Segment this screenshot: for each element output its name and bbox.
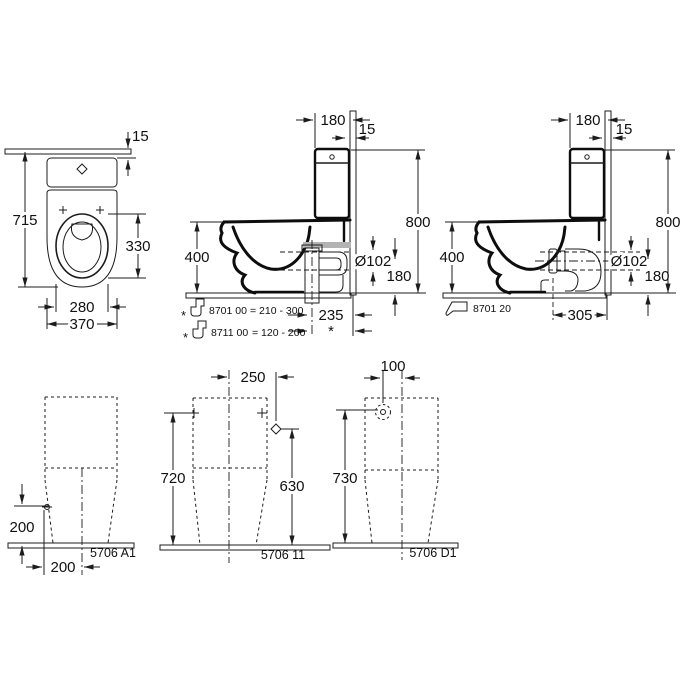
dim-height-720: 720 xyxy=(160,413,189,545)
cistern-front xyxy=(47,158,117,187)
dim-outlet-to-wall: 305 xyxy=(553,295,607,324)
dim-label: 250 xyxy=(240,369,265,386)
floor-section xyxy=(186,293,351,298)
note-code: 8701 20 xyxy=(473,303,511,315)
rear-view-d1: 100 730 5706 D1 xyxy=(332,358,458,560)
dim-label: 370 xyxy=(69,316,94,333)
vario-outlet-icon xyxy=(191,299,204,316)
horizontal-outlet-icon xyxy=(446,302,467,315)
dim-label: 180 xyxy=(644,268,669,285)
dim-cistern-depth: 180 xyxy=(551,112,625,148)
dim-supply-offset: 100 xyxy=(364,358,420,403)
variable-dim-marker: * xyxy=(328,323,334,340)
dim-label: 305 xyxy=(567,307,592,324)
flush-button-icon xyxy=(77,164,87,174)
rear-view-a1: 200 200 5706 A1 xyxy=(8,397,136,576)
spec-sheet: 15 715 330 280 370 xyxy=(0,0,700,700)
wall-section xyxy=(5,149,131,154)
dim-label: Ø102 xyxy=(611,253,648,270)
rear-view-center: 250 720 630 5706 11 xyxy=(160,369,330,563)
dim-label: 720 xyxy=(160,470,185,487)
dim-outlet-height: 180 xyxy=(386,238,411,316)
dim-label: 180 xyxy=(575,112,600,129)
dim-supply-height: 200 xyxy=(9,484,48,564)
bowl-front xyxy=(47,190,117,287)
note-asterisk: * xyxy=(183,330,188,345)
dim-seat-opening: 330 xyxy=(108,214,151,278)
dim-label: 800 xyxy=(655,214,680,231)
dim-label: 630 xyxy=(279,478,304,495)
supply-diamond-icon xyxy=(271,424,281,434)
dim-label: 180 xyxy=(320,112,345,129)
dim-label: 730 xyxy=(332,470,357,487)
model-number: 5706 11 xyxy=(261,548,305,562)
model-number: 5706 D1 xyxy=(409,546,456,560)
note-range: = 210 - 300 xyxy=(250,305,304,317)
note-code: 8711 00 xyxy=(211,327,248,339)
technical-drawing: 15 715 330 280 370 xyxy=(0,0,700,700)
dim-supply-height: 730 xyxy=(332,410,378,543)
outline-dashed xyxy=(365,370,438,560)
note-range: = 120 - 200 xyxy=(252,327,306,339)
dim-label: 235 xyxy=(318,307,343,324)
dim-label: 400 xyxy=(184,249,209,266)
floor-section xyxy=(443,293,606,298)
cistern-side xyxy=(315,149,349,218)
dim-bowl-height: 400 xyxy=(184,222,222,293)
hinge-mark-left xyxy=(59,206,67,214)
side-view-vertical-outlet: 180 15 800 400 Ø102 180 xyxy=(181,111,431,345)
dim-label: 200 xyxy=(50,559,75,576)
dim-supply-height: 630 xyxy=(279,429,304,545)
outlet-note-2: * 8711 00 = 120 - 200 xyxy=(183,321,306,345)
front-view: 15 715 330 280 370 xyxy=(5,128,151,333)
dim-label: 400 xyxy=(439,249,464,266)
note-asterisk: * xyxy=(181,308,186,323)
dim-supply-offset: 250 xyxy=(211,369,294,421)
cistern-side xyxy=(570,149,604,218)
dim-bowl-height: 400 xyxy=(439,222,477,293)
dim-label: 330 xyxy=(125,238,150,255)
hinge-mark-left xyxy=(189,408,199,418)
dim-label: 280 xyxy=(69,299,94,316)
supply-point xyxy=(42,505,52,510)
supply-point xyxy=(376,405,391,420)
bowl-side xyxy=(476,220,605,293)
dim-label: 15 xyxy=(132,128,149,145)
hinge-mark-right xyxy=(257,408,267,418)
note-code: 8701 00 xyxy=(209,305,247,317)
dim-outlet-diameter: Ø102 xyxy=(611,236,648,286)
hinge-mark-right xyxy=(96,206,104,214)
dim-label: 100 xyxy=(380,358,405,375)
dim-wall-gap-front: 15 xyxy=(117,128,149,176)
dim-seat-width: 280 xyxy=(38,284,126,316)
outlet-note-1: * 8701 00 = 210 - 300 xyxy=(181,299,304,323)
outlet-note: 8701 20 xyxy=(446,302,511,315)
dim-label: 800 xyxy=(405,214,430,231)
dim-label: 715 xyxy=(12,212,37,229)
bowl-side xyxy=(221,220,350,293)
dim-label: 15 xyxy=(616,121,633,138)
dim-label: 200 xyxy=(9,519,34,536)
side-view-horizontal-outlet: 180 15 800 400 Ø102 180 xyxy=(439,111,680,324)
dim-label: 180 xyxy=(386,268,411,285)
outline-dashed xyxy=(193,370,267,563)
vario-outlet-short-icon xyxy=(193,321,206,338)
flush-rim xyxy=(71,224,92,240)
model-number: 5706 A1 xyxy=(90,546,136,560)
dim-label: 15 xyxy=(359,121,376,138)
dim-outlet-height: 180 xyxy=(644,238,669,316)
